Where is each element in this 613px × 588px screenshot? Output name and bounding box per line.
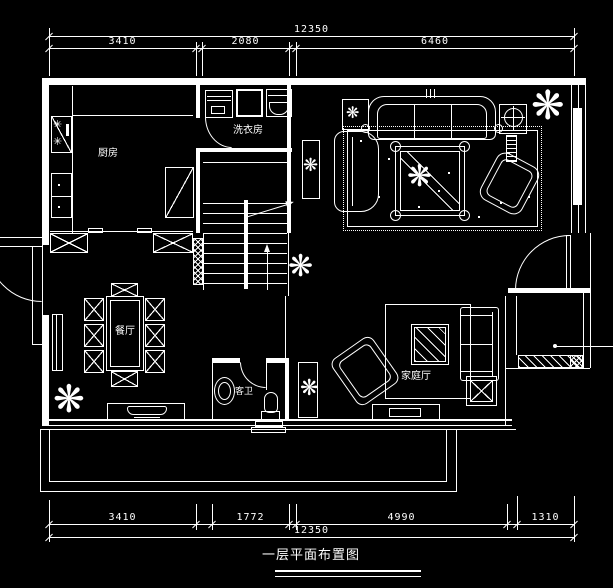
dim-value-bottom-seg4: 1310 [517,513,574,523]
plant-icon: ❋ [531,86,565,126]
tv-cabinet-inner [389,408,421,417]
coffee-table-corner [459,210,470,221]
tub-detail [268,95,290,96]
wall-right-line [571,78,572,233]
laundry-label: 洗衣房 [226,125,270,136]
plant-icon: ❋ [303,157,318,175]
stair-direction-line [267,250,268,290]
dim-ext [196,504,197,530]
title-underline-thin [275,576,421,577]
dim-ext [289,504,290,530]
door-jamb [137,228,152,233]
stoop-edge [32,344,42,345]
dim-line-top-segments [49,48,574,49]
dim-ext [296,504,297,530]
sofa-back-detail [434,89,435,98]
dining-chair [84,350,104,373]
wall-left-upper [42,78,49,245]
stove-burner-icon: ✳ [53,119,62,130]
coffee-table-corner [459,141,470,152]
wall-right-solid [573,108,582,205]
radiator-inner-line [56,314,57,371]
porch-cabinet-end [570,355,583,368]
plant-icon: ❋ [288,252,313,282]
bath-door-swing-arc [240,362,266,388]
wall-top [42,78,585,85]
dim-value-top-seg2: 2080 [202,37,289,47]
dim-ext [507,504,508,530]
drawing-title: 一层平面布置图 [231,549,391,563]
dining-chair [145,350,165,373]
toilet-bowl [264,392,278,413]
wall-left-lower [42,315,49,425]
dining-chair [145,324,165,347]
sofa-back-detail [430,89,431,98]
wall-kitchen-stairs [196,150,200,233]
coffee-table-corner [390,210,401,221]
bath-wall-left [212,362,213,420]
plant-icon: ❋ [53,380,85,418]
dining-radiator [52,314,63,371]
dim-value-top-seg3: 6460 [296,37,574,47]
wall-laundry-bottom [196,148,292,152]
dim-line-bottom-overall [49,537,574,538]
wall-left-door-opening [42,245,43,315]
sideboard-bowl [127,406,167,415]
plant-icon: ❋ [346,105,359,121]
dim-value-bottom-overall: 12350 [49,526,574,536]
stair-arrow-head [264,244,270,252]
porch-bottom-line [505,368,590,369]
dining-chair [145,298,165,321]
bath-wall-top [212,358,240,363]
stair-landing-line [203,162,287,163]
dim-value-bottom-seg3: 4990 [296,513,507,523]
title-underline-thick [275,570,421,572]
plant-icon: ❋ [407,162,432,192]
column-box [153,233,193,253]
stair-side-line [203,233,204,290]
family-sofa-arm [461,371,492,372]
dim-value-top-overall: 12350 [49,25,574,35]
column-box [50,233,88,253]
sink-faucet-dot [58,184,60,186]
entry-door-swing-arc [515,235,570,290]
stove-burner-icon: ✳ [53,136,62,147]
washer-detail [207,100,231,101]
family-table-top [414,327,446,362]
living-sofa-cushions [377,104,487,139]
sofa-cushion-divider [451,104,452,139]
kitchen-counter-edge [72,115,193,116]
stair-direction-line [245,204,289,218]
wall-right-outer-line [585,78,586,233]
porch-wall-inner [516,296,517,355]
washer-door [211,106,225,114]
dining-chair [84,324,104,347]
family-side-table-inner [470,380,493,402]
coffee-table-corner [390,141,401,152]
leader-line [556,346,613,347]
dining-chair [111,283,138,297]
dim-value-top-seg1: 3410 [49,37,196,47]
curtain-runner [506,135,517,162]
bath-door-leaf [266,362,267,390]
dining-label: 餐厅 [106,326,144,337]
sofa-back-detail [426,89,427,98]
entry-door-leaf [566,235,571,290]
sideboard-bowl-base [134,417,160,418]
armchair-cushion-line [352,137,353,206]
dim-value-bottom-seg2: 1772 [212,513,289,523]
porch-wall-top [508,288,590,293]
sink-faucet-dot [58,206,60,208]
deck-walkway-line [457,429,516,430]
deck-inner [49,429,447,482]
living-armchair-left [334,131,379,212]
kitchen-counter-edge [72,86,73,233]
bath-wall-right [285,358,289,420]
family-label: 家庭厅 [386,371,446,382]
kitchen-label: 厨房 [88,148,128,159]
porch-wall-right [583,293,584,368]
family-sofa-back [492,312,493,376]
wall-hall-bath [285,296,286,358]
bathroom-label: 客卫 [222,388,266,398]
dining-chair [111,371,138,387]
porch-wall-left [505,296,506,425]
stoop-edge [0,237,42,238]
wall-hatched-column [193,238,203,285]
door-jamb [88,228,103,233]
left-door-swing-arc [0,247,42,302]
kitchen-fridge [165,167,194,218]
washer-detail [207,96,231,97]
sofa-cushion-divider [414,104,415,139]
stair-stringer [244,200,248,289]
plant-icon: ❋ [300,378,318,400]
dim-ext [212,504,213,530]
wall-kitchen-laundry-upper [196,85,200,118]
family-sofa-cushion [461,344,492,345]
dining-chair [84,298,104,321]
kitchen-sink-divider [51,196,72,197]
dim-value-bottom-seg1: 3410 [49,513,196,523]
laundry-counter [236,89,263,117]
family-sofa-arm [461,315,492,316]
porch-outer-edge [590,233,591,368]
stair-arrow-head [285,199,294,207]
stove-detail [66,124,69,136]
side-table-cross [513,106,514,130]
floor-plan-canvas: 12350 3410 2080 6460 3410 1772 4990 1310… [0,0,613,588]
